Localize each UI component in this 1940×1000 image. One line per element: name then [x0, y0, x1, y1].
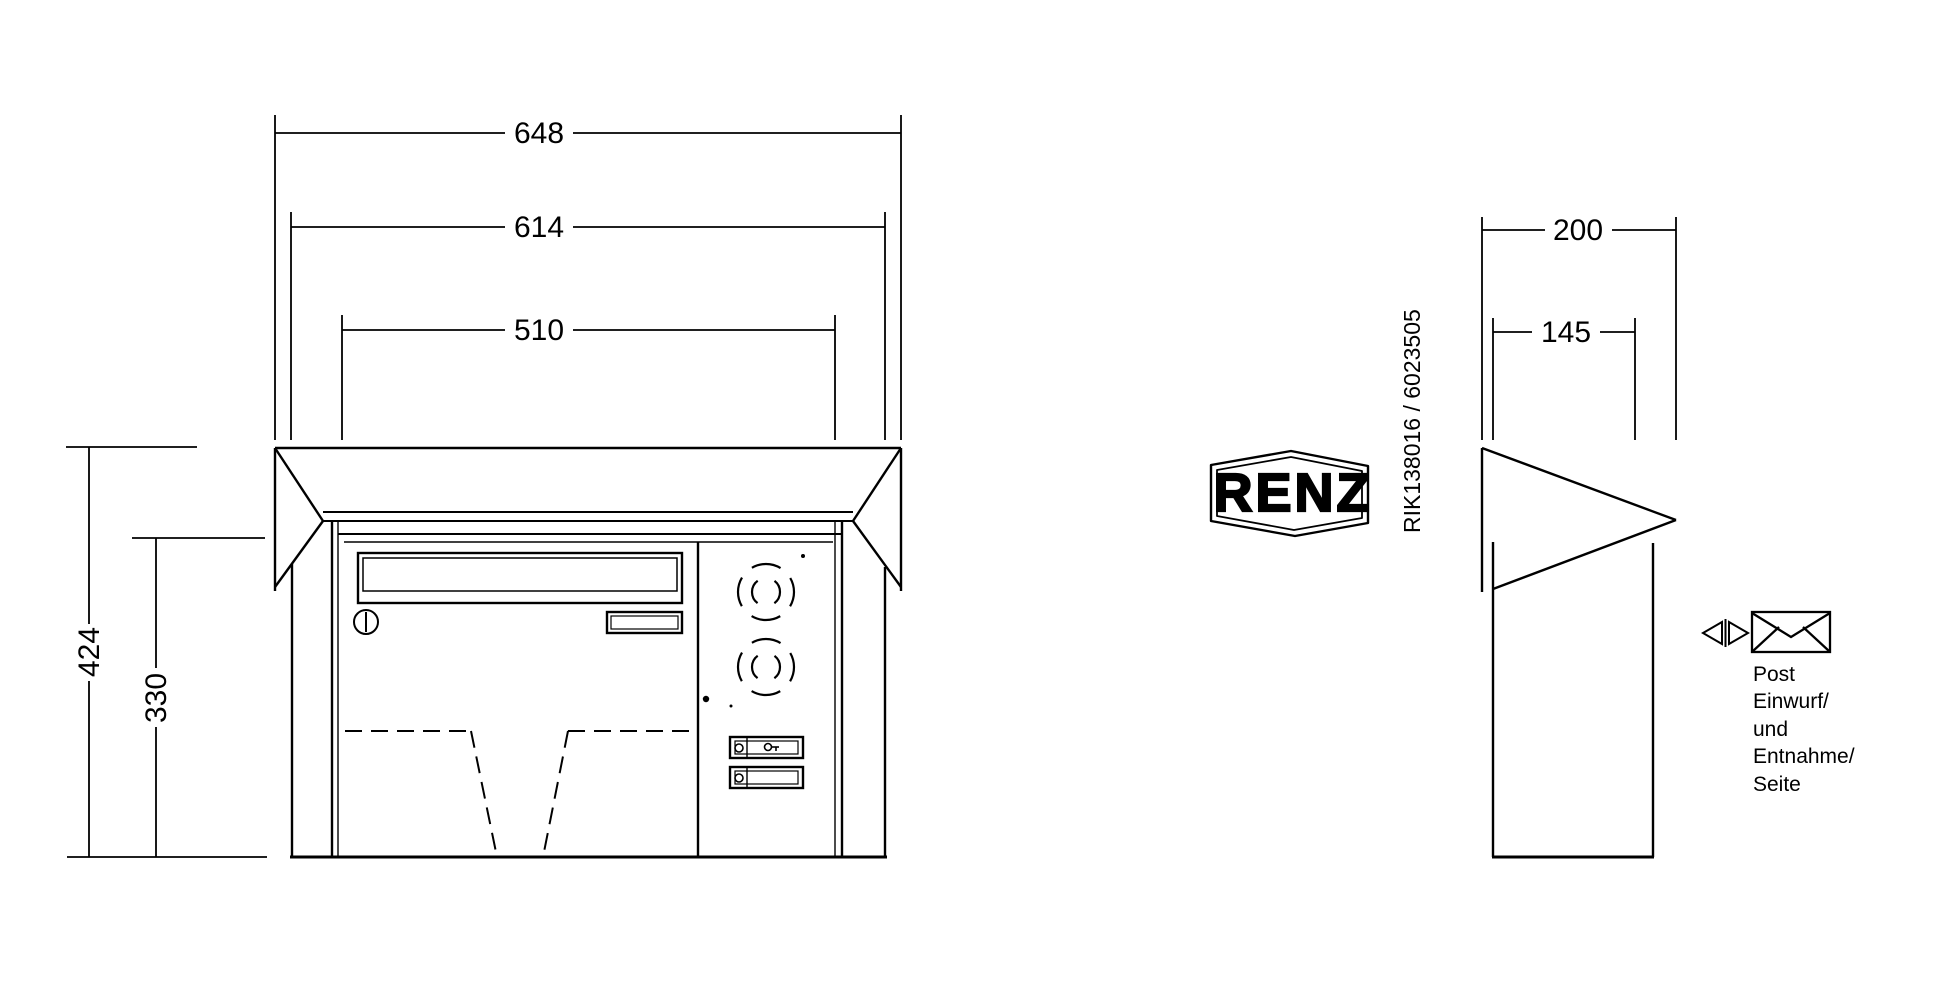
legend: Post Einwurf/ und Entnahme/ Seite	[1703, 612, 1855, 796]
dim-width-overall: 648	[514, 117, 564, 150]
part-number: RIK138016 / 6023505	[1399, 309, 1425, 533]
envelope-icon	[1752, 612, 1830, 652]
screw-dot	[730, 705, 733, 708]
technical-drawing: 648 614 510 424 330	[0, 0, 1940, 1000]
legend-line: Seite	[1753, 773, 1801, 796]
logo-text: RENZ	[1214, 463, 1373, 523]
legend-line: Entnahme/	[1753, 745, 1855, 768]
speaker-icon	[738, 639, 794, 695]
front-mailbox	[275, 448, 901, 858]
hidden-post-outline	[345, 731, 697, 857]
renz-logo: RENZ	[1211, 451, 1373, 536]
side-roof	[1482, 448, 1676, 592]
key-icon	[765, 744, 780, 752]
left-right-arrows-icon	[1703, 619, 1748, 647]
speaker-icon	[738, 564, 794, 620]
legend-line: Post	[1753, 663, 1795, 686]
letter-slot	[358, 553, 682, 603]
dim-height-body: 330	[140, 673, 173, 723]
bell-button	[730, 767, 803, 788]
legend-line: und	[1753, 718, 1788, 741]
body	[290, 521, 887, 858]
drawing-canvas: 648 614 510 424 330	[0, 0, 1940, 1000]
name-plate	[607, 612, 682, 633]
side-post	[1492, 542, 1654, 857]
lock-icon	[354, 610, 378, 634]
legend-line: Einwurf/	[1753, 690, 1829, 713]
dim-width-door: 510	[514, 314, 564, 347]
dim-depth-body: 145	[1541, 316, 1591, 349]
dim-depth-overall: 200	[1553, 214, 1603, 247]
screw-dot	[801, 554, 805, 558]
screw-dot	[703, 696, 709, 702]
front-top-dimensions	[275, 115, 901, 440]
roof	[275, 448, 901, 591]
bell-button	[730, 737, 803, 758]
dim-width-body: 614	[514, 211, 564, 244]
side-mailbox	[1482, 448, 1676, 857]
dim-height-overall: 424	[73, 627, 106, 677]
